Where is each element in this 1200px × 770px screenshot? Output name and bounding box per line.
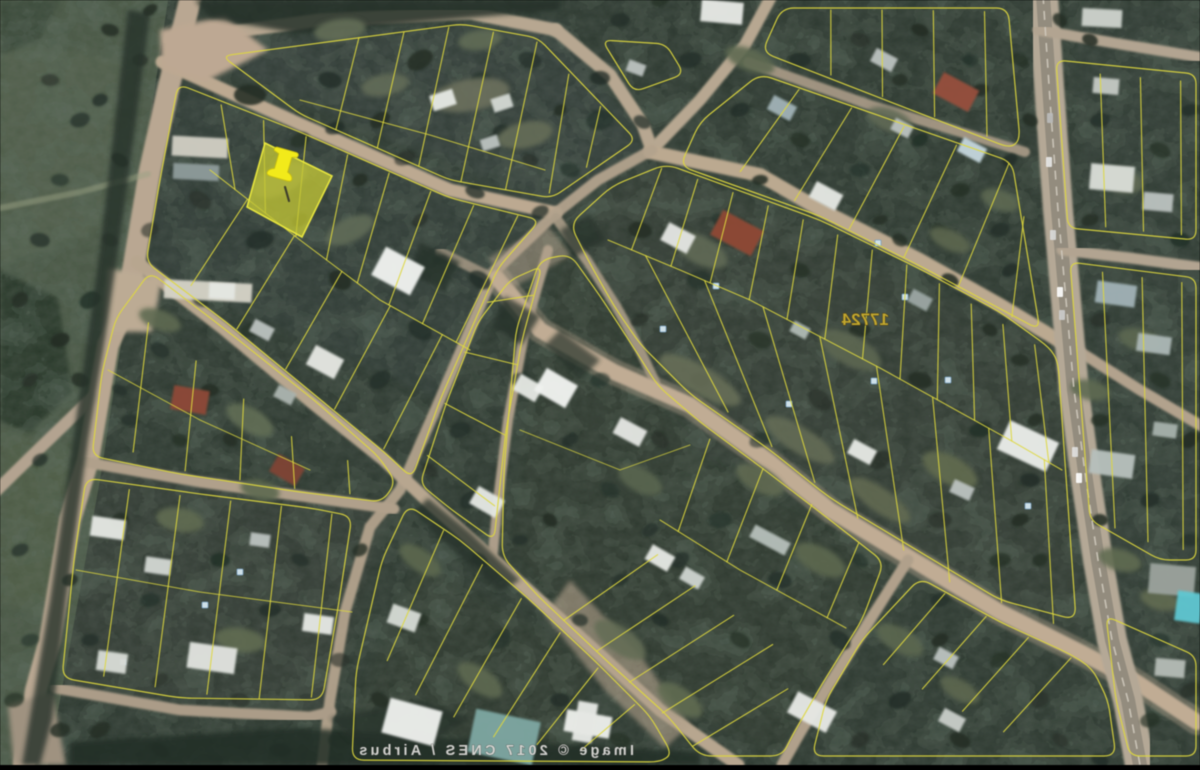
svg-text:Image © 2017 CNES / Airbus: Image © 2017 CNES / Airbus — [356, 743, 634, 759]
svg-text:17724: 17724 — [841, 310, 889, 329]
